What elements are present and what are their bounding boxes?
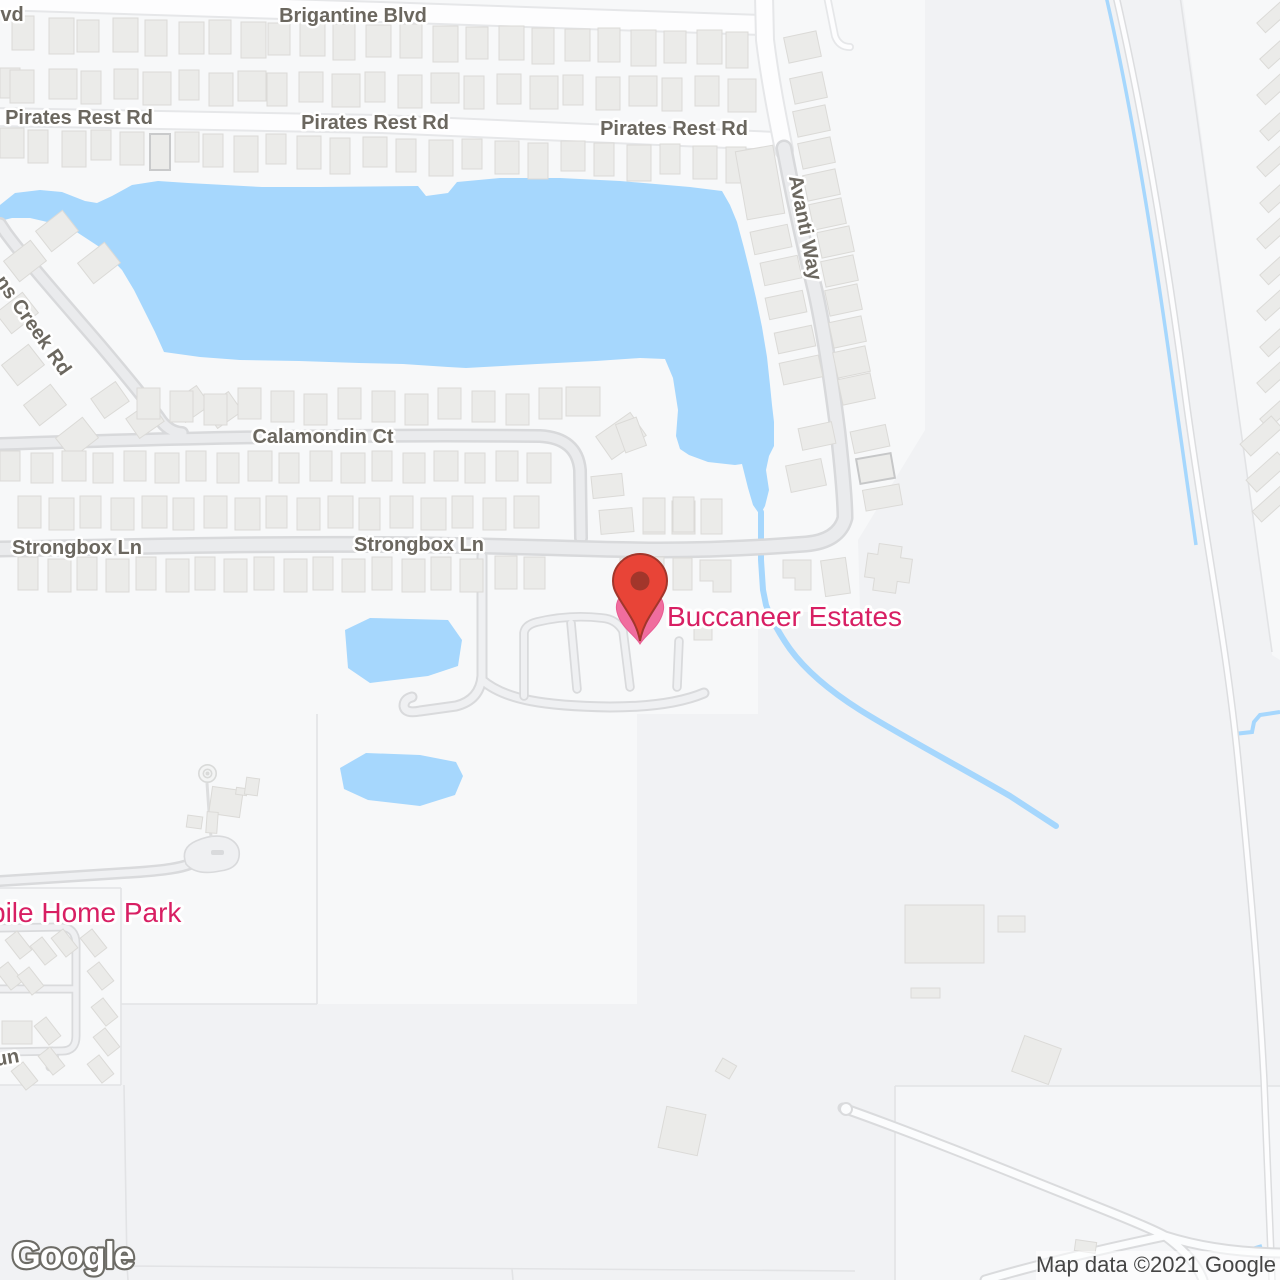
svg-text:Google: Google: [12, 1235, 134, 1276]
svg-text:Pirates Rest Rd: Pirates Rest Rd: [5, 107, 153, 129]
svg-text:bile Home Park: bile Home Park: [0, 897, 182, 928]
svg-text:Brigantine Blvd: Brigantine Blvd: [279, 5, 427, 27]
svg-text:Buccaneer Estates: Buccaneer Estates: [667, 601, 902, 632]
svg-text:Calamondin Ct: Calamondin Ct: [252, 426, 393, 448]
svg-text:Pirates Rest Rd: Pirates Rest Rd: [301, 112, 449, 134]
svg-text:Strongbox Ln: Strongbox Ln: [354, 534, 484, 556]
svg-text:Strongbox Ln: Strongbox Ln: [12, 537, 142, 559]
svg-text:vd: vd: [0, 4, 23, 26]
svg-text:Pirates Rest Rd: Pirates Rest Rd: [600, 118, 748, 140]
svg-text:Map data ©2021 Google: Map data ©2021 Google: [1036, 1252, 1276, 1277]
svg-text:un: un: [0, 1045, 21, 1071]
